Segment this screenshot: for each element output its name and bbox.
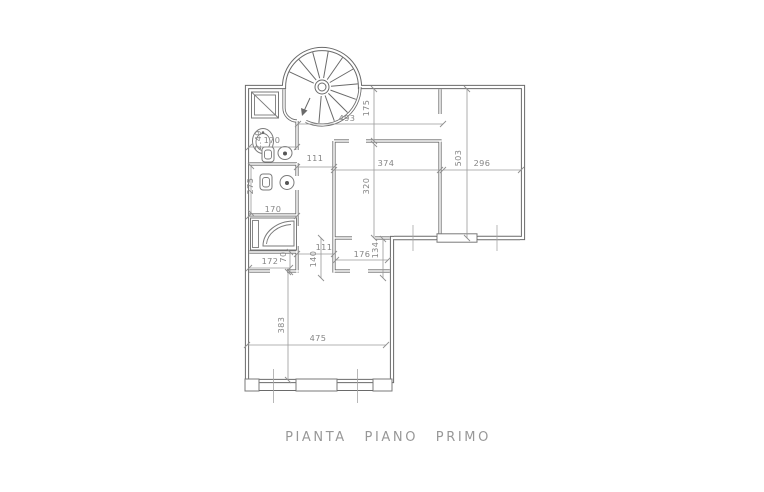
dim-label-176: 176 bbox=[354, 249, 371, 259]
dim-label-296: 296 bbox=[474, 158, 491, 168]
bidet bbox=[262, 147, 274, 162]
floor-plan-page: 493 175 374 320 503 296 170 111 275 2.49… bbox=[0, 0, 764, 492]
dim-label-170a: 170 bbox=[264, 135, 281, 145]
dim-label-493: 493 bbox=[339, 113, 356, 123]
sink-label-249: 2.49 bbox=[253, 130, 263, 150]
dim-label-320: 320 bbox=[361, 178, 371, 195]
floor-plan-svg: 493 175 374 320 503 296 170 111 275 2.49… bbox=[0, 0, 764, 492]
bidet bbox=[260, 174, 272, 190]
dim-label-374: 374 bbox=[378, 158, 395, 168]
dim-label-475: 475 bbox=[310, 333, 327, 343]
stair-direction-arrow bbox=[301, 98, 310, 116]
dim-label-70: 70 bbox=[278, 251, 288, 262]
toilet bbox=[280, 176, 294, 190]
corner-bathtub bbox=[251, 218, 297, 250]
dim-label-383: 383 bbox=[276, 317, 286, 334]
dim-label-111a: 111 bbox=[307, 153, 324, 163]
window bbox=[245, 369, 392, 403]
dim-label-111b: 111 bbox=[316, 242, 333, 252]
dim-label-134: 134 bbox=[370, 242, 380, 259]
dim-label-275: 275 bbox=[245, 178, 255, 195]
dim-label-170b: 170 bbox=[265, 204, 282, 214]
dim-label-175: 175 bbox=[361, 100, 371, 117]
toilet bbox=[278, 147, 292, 160]
dim-label-140: 140 bbox=[308, 251, 318, 268]
window bbox=[394, 225, 520, 251]
dim-label-172: 172 bbox=[262, 256, 279, 266]
dim-label-503: 503 bbox=[453, 150, 463, 167]
shower bbox=[252, 92, 279, 118]
plan-title: PIANTA PIANO PRIMO bbox=[285, 430, 491, 445]
